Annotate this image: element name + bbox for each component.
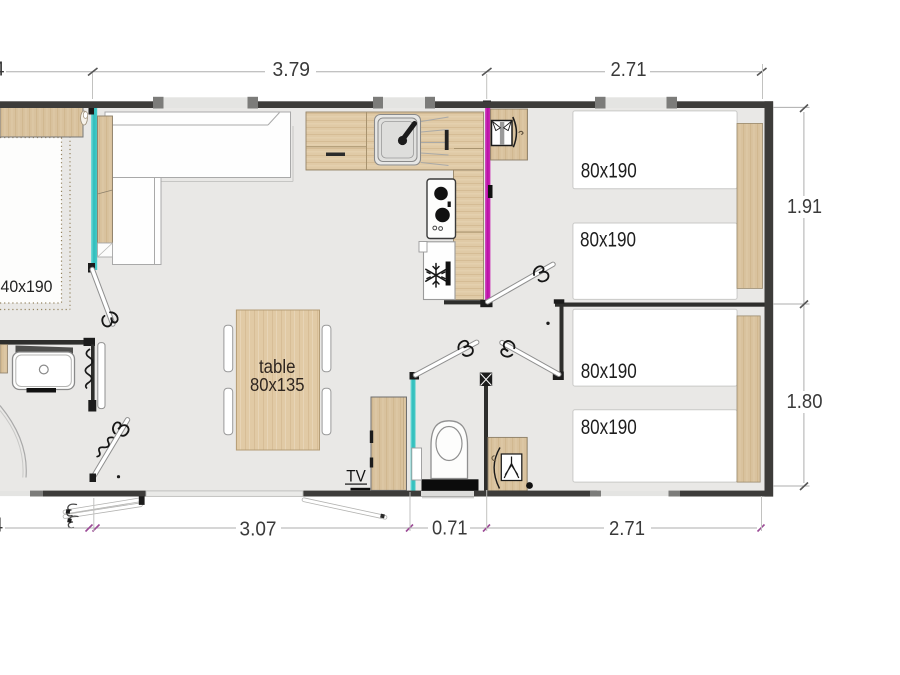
svg-text:3.79: 3.79 [273,58,311,81]
svg-text:4: 4 [0,58,5,81]
svg-text:80x190: 80x190 [581,359,637,383]
svg-text:1.91: 1.91 [787,195,822,218]
svg-text:1.80: 1.80 [787,390,823,413]
svg-text:80x190: 80x190 [581,158,637,182]
svg-text:2.71: 2.71 [611,58,647,81]
svg-text:TV: TV [346,468,366,486]
svg-text:4: 4 [0,514,3,537]
svg-text:80x190: 80x190 [581,415,637,439]
svg-text:80x190: 80x190 [580,227,636,251]
svg-text:3.07: 3.07 [240,518,277,541]
svg-text:80x135: 80x135 [250,375,305,395]
svg-text:2.71: 2.71 [609,517,645,540]
svg-text:40x190: 40x190 [1,278,53,296]
svg-text:0.71: 0.71 [432,517,468,540]
